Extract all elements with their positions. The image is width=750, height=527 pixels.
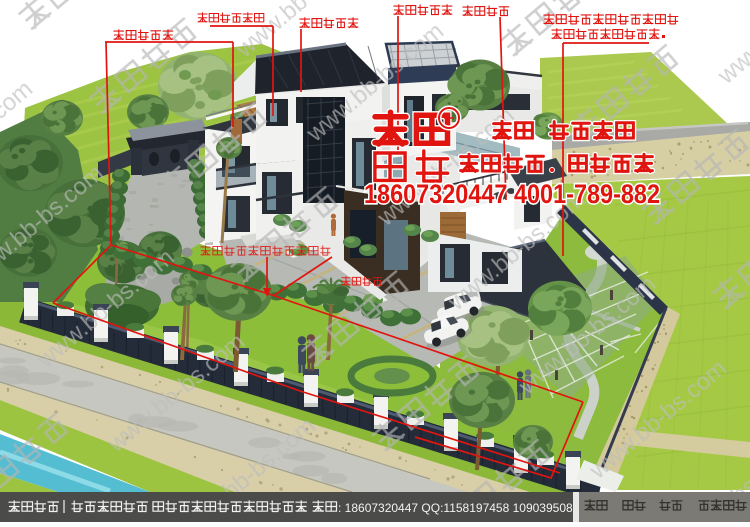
- svg-text:: 18607320447 QQ:1158197458 10: : 18607320447 QQ:1158197458 109039508: [338, 501, 573, 515]
- svg-text:18607320447 4001-789-882: 18607320447 4001-789-882: [364, 179, 660, 209]
